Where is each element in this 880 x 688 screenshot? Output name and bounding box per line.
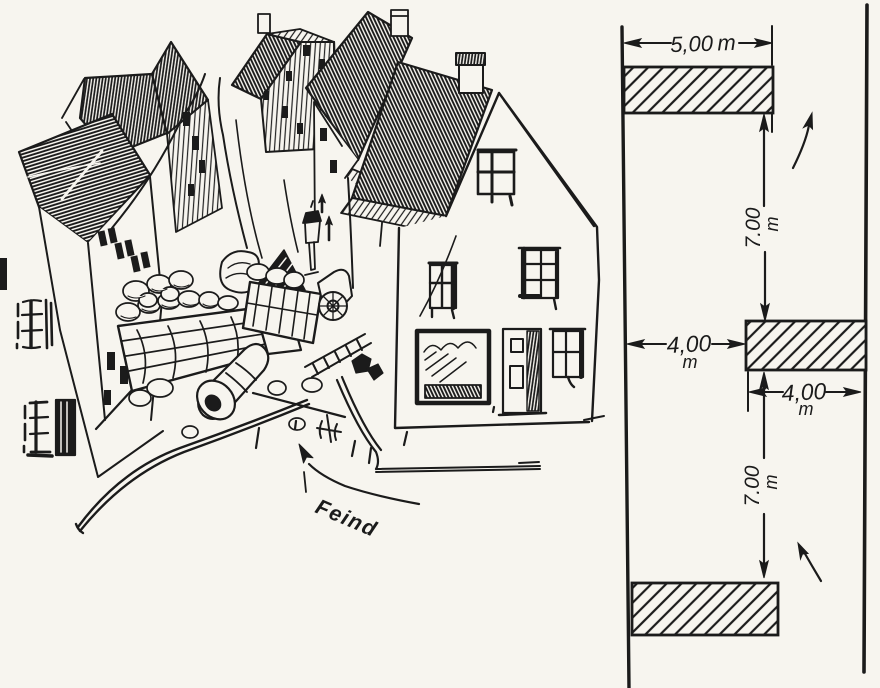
svg-text:m: m bbox=[799, 399, 814, 419]
svg-text:5,00 m: 5,00 m bbox=[670, 30, 736, 57]
svg-text:m: m bbox=[762, 217, 782, 232]
svg-text:m: m bbox=[761, 475, 781, 490]
svg-text:m: m bbox=[683, 352, 698, 372]
